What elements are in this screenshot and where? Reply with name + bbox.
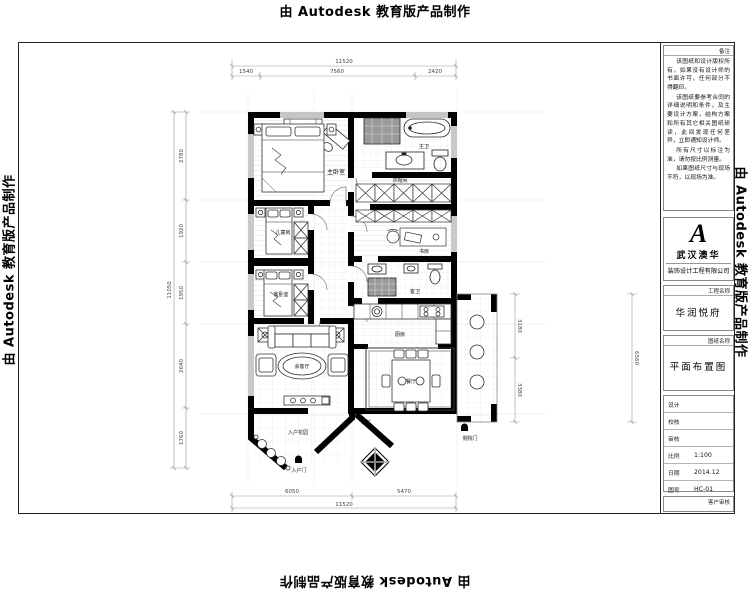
room-label-dining: 餐厅 bbox=[406, 378, 416, 385]
dim-left-seg: 2640 bbox=[179, 359, 185, 373]
room-label-master-bath: 主卫 bbox=[419, 143, 429, 150]
room-label-entry-door: 入户门 bbox=[291, 467, 306, 474]
dim-left-seg: 1920 bbox=[179, 224, 185, 238]
dim-left-seg: 2780 bbox=[179, 149, 185, 163]
dim-left-overall: 11050 bbox=[167, 281, 173, 299]
room-label-study: 书房 bbox=[419, 248, 429, 255]
compass-ornament bbox=[361, 448, 389, 476]
room-label-foyer: 玄关 bbox=[361, 419, 371, 426]
dim-bottom-overall: 11520 bbox=[335, 502, 353, 508]
dim-left-seg: 1950 bbox=[179, 286, 185, 300]
room-label-kids-room: 儿童房 bbox=[275, 229, 290, 236]
room-label-master-bedroom: 主卧室 bbox=[327, 168, 345, 176]
room-label-guest-bath: 客卫 bbox=[410, 288, 420, 295]
dim-right-seg: 3380 bbox=[516, 383, 522, 397]
entry-door-icon bbox=[295, 456, 302, 464]
dim-top-overall: 11520 bbox=[335, 59, 353, 65]
dim-top-seg: 7560 bbox=[330, 69, 344, 75]
room-label-entry-garden: 入户花园 bbox=[288, 429, 308, 436]
dim-top-seg: 1540 bbox=[239, 69, 253, 75]
room-label-kitchen: 厨房 bbox=[395, 331, 405, 338]
room-label-side-door: 侧院门 bbox=[462, 435, 477, 442]
floor-plan: 主卧室 主卫 衣帽间 儿童房 客卧室 书房 客卫 厨房 餐厅 会客厅 入户花园 … bbox=[0, 0, 750, 594]
dim-right-seg: 3180 bbox=[516, 319, 522, 333]
dim-right-overall: 6560 bbox=[633, 351, 639, 365]
drawing-sheet: 由 Autodesk 教育版产品制作 由 Autodesk 教育版产品制作 由 … bbox=[0, 0, 750, 594]
dim-left-seg: 1760 bbox=[179, 431, 185, 445]
dim-bottom-seg: 6050 bbox=[285, 489, 299, 495]
side-door-icon bbox=[461, 424, 468, 432]
room-label-living: 会客厅 bbox=[294, 363, 309, 370]
dim-bottom-seg: 5470 bbox=[397, 489, 411, 495]
room-label-guest-bedroom: 客卧室 bbox=[273, 291, 288, 298]
cloakroom-wardrobes bbox=[356, 184, 451, 202]
dim-top-seg: 2420 bbox=[428, 69, 442, 75]
room-label-cloakroom: 衣帽间 bbox=[392, 177, 407, 184]
